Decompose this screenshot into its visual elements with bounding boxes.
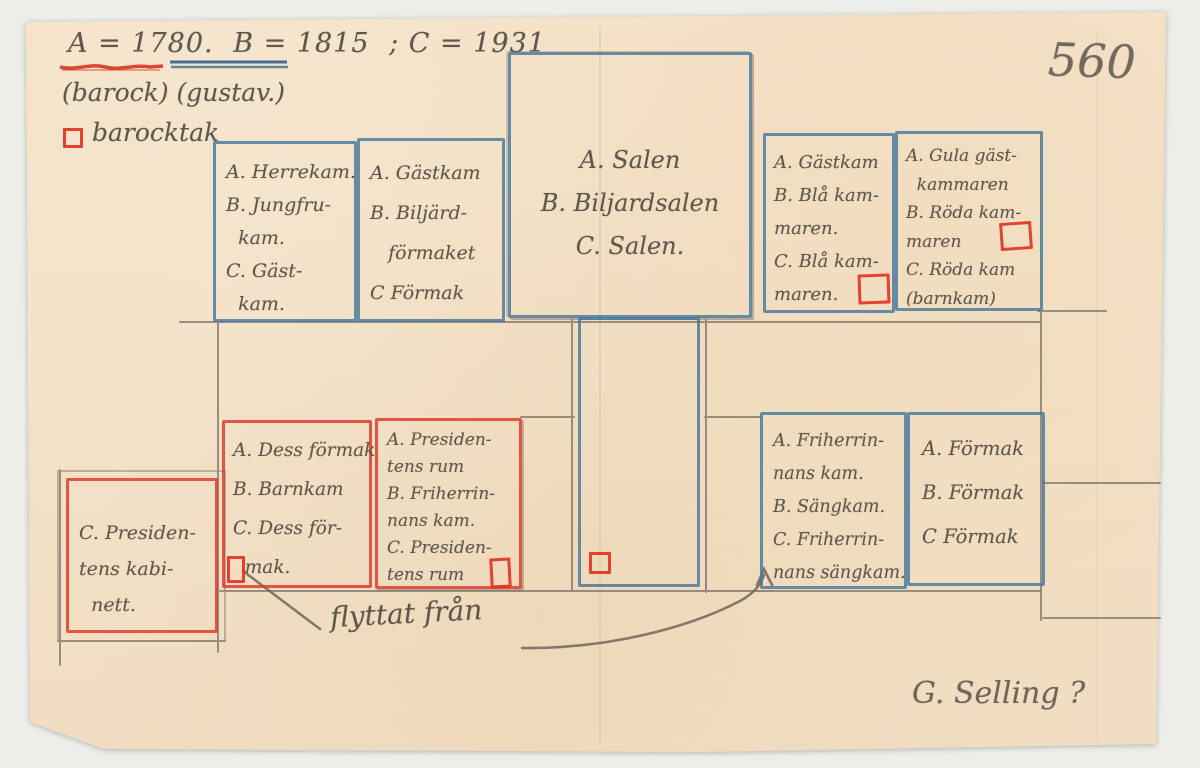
page-number: 560	[1047, 32, 1137, 89]
scanned-floor-plan-card: A = 1780. B = 1815 ; C = 1931 (barock) (…	[0, 0, 1200, 768]
legend-label: barocktak	[92, 118, 219, 147]
barocktak-marker-icon	[227, 556, 245, 583]
room-label-line: tens rum	[387, 454, 519, 481]
period-b: B = 1815	[233, 28, 369, 59]
room-label-line: A. Förmak	[922, 427, 1042, 471]
room-label-line: C Förmak	[922, 515, 1042, 559]
blue-underline	[170, 62, 288, 67]
room-label-line: C. Presiden-	[79, 515, 213, 551]
room-label-line: A. Friherrin-	[773, 425, 904, 458]
room-herrekammaren: A. Herrekam. B. Jungfru- kam. C. Gäst- k…	[213, 141, 357, 322]
room-label-line: A. Gästkam	[774, 146, 890, 179]
barocktak-marker-icon	[63, 128, 83, 148]
room-label-line: C. Dess för-	[233, 509, 369, 548]
barocktak-marker-icon	[999, 221, 1033, 251]
attribution-note: G. Selling ?	[912, 676, 1085, 711]
room-label-line: (barnkam)	[906, 285, 1038, 314]
room-label-line: B. Biljärd-	[370, 193, 500, 233]
room-label-line: C. Gäst-	[226, 255, 350, 288]
barocktak-marker-icon	[857, 273, 890, 304]
room-label-line: B. Blå kam-	[774, 179, 890, 212]
room-label-line: C Förmak	[370, 273, 500, 313]
room-label-line: tens kabi-	[79, 551, 213, 587]
room-label-line: C. Friherrin-	[773, 524, 904, 557]
dating-legend: A = 1780. B = 1815 ; C = 1931	[68, 28, 556, 59]
room-label-line: B. Sängkam.	[773, 491, 904, 524]
room-label-line: A. Gästkam	[370, 153, 500, 193]
room-label-line: B. Förmak	[922, 471, 1042, 515]
room-label-line: nans sängkam.	[773, 557, 904, 590]
room-label-line: kam.	[226, 288, 350, 321]
room-formak: A. Förmak B. Förmak C Förmak	[907, 412, 1045, 586]
room-label-line: kammaren	[906, 171, 1038, 200]
barocktak-marker-icon	[589, 552, 611, 574]
room-label-line: nett.	[79, 587, 213, 623]
room-label-line: nans kam.	[773, 458, 904, 491]
room-label-line: A. Herrekam.	[226, 156, 350, 189]
room-salen: A. Salen B. Biljardsalen C. Salen.	[508, 52, 752, 318]
room-label-line: maren.	[774, 212, 890, 245]
room-presidentens-kabinett: C. Presiden- tens kabi- nett.	[66, 478, 218, 633]
room-label-line: C. Salen.	[511, 225, 749, 268]
room-label-line: B. Barnkam	[233, 470, 369, 509]
room-label-line: mak.	[233, 548, 369, 587]
room-label-line: B. Biljardsalen	[511, 182, 749, 225]
room-biljardformaket: A. Gästkam B. Biljärd- förmaket C Förmak	[357, 138, 505, 322]
red-underline	[60, 66, 163, 70]
room-label-line: B. Jungfru-	[226, 189, 350, 222]
room-label-line: A. Presiden-	[387, 427, 519, 454]
room-label-line: A. Gula gäst-	[906, 142, 1038, 171]
period-a: A = 1780.	[68, 28, 214, 59]
room-label-line: förmaket	[370, 233, 500, 273]
room-label-line: kam.	[226, 222, 350, 255]
corridor-shaft	[578, 317, 700, 587]
style-note: (barock) (gustav.)	[62, 78, 285, 107]
room-label-line: A. Salen	[511, 139, 749, 182]
room-label-line: C. Röda kam	[906, 256, 1038, 285]
room-label-line: A. Dess förmak	[233, 431, 369, 470]
room-friherrinnans-kam: A. Friherrin- nans kam. B. Sängkam. C. F…	[760, 412, 907, 589]
barocktak-marker-icon	[489, 557, 512, 588]
room-label-line: nans kam.	[387, 508, 519, 535]
room-label-line: B. Friherrin-	[387, 481, 519, 508]
